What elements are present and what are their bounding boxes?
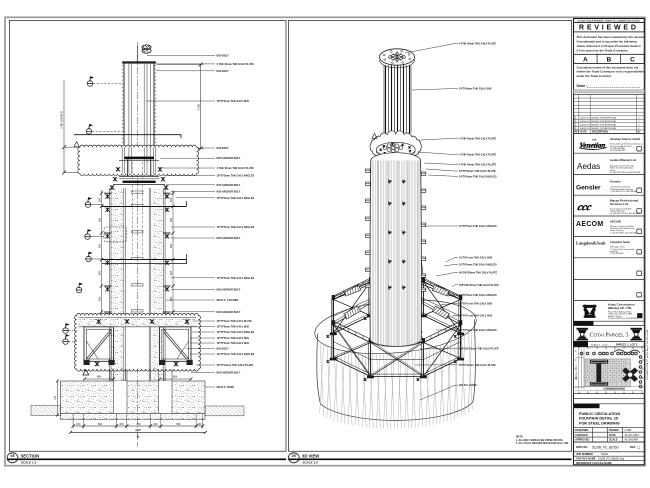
svg-text:C: C bbox=[630, 57, 635, 64]
svg-text:5110B_PC_B(0)50: 5110B_PC_B(0)50 bbox=[592, 445, 619, 449]
svg-text:864: 864 bbox=[173, 375, 178, 379]
svg-text:M16 BOLT: M16 BOLT bbox=[217, 348, 230, 351]
svg-text:4 THK 40mm THK GALV PLATE: 4 THK 40mm THK GALV PLATE bbox=[217, 167, 254, 170]
svg-text:REFERENCE CAD FILE NAME: REFERENCE CAD FILE NAME bbox=[576, 462, 612, 465]
svg-text:T: +852.2801.6722 F: +852.280: T: +852.2801.6722 F: +852.2801.6862 bbox=[610, 191, 637, 193]
svg-text:Tel: (853) 2882 8888: Tel: (853) 2882 8888 bbox=[610, 148, 625, 150]
svg-text:PUBLIC CIRCULATION: PUBLIC CIRCULATION bbox=[579, 412, 620, 416]
svg-text:10*70*50mm THK GALV PLATE: 10*70*50mm THK GALV PLATE bbox=[459, 170, 496, 173]
svg-text:40*70*10mm THK GALV PLATE: 40*70*10mm THK GALV PLATE bbox=[217, 364, 254, 367]
svg-text:Tel: (853) 2875 3225 Fax: (85: Tel: (853) 2875 3225 Fax: (853) 2875 322… bbox=[610, 213, 640, 215]
svg-text:FOUNTAIN DETAIL 25: FOUNTAIN DETAIL 25 bbox=[579, 417, 618, 421]
svg-text:SCALE 1:5: SCALE 1:5 bbox=[21, 461, 37, 465]
svg-text:Services Ltd.: Services Ltd. bbox=[610, 202, 629, 206]
svg-text:4 THK 40mm THK GALV PLATE: 4 THK 40mm THK GALV PLATE bbox=[459, 43, 496, 46]
svg-text:10*70*5mm THK GALV ANGLES: 10*70*5mm THK GALV ANGLES bbox=[217, 353, 255, 356]
svg-text:40*70*5mm THK GALV PLATE: 40*70*5mm THK GALV PLATE bbox=[217, 320, 253, 323]
svg-text:1. ALL BOLT SHOULD BE FIXING O: 1. ALL BOLT SHOULD BE FIXING ON SITE. bbox=[516, 439, 564, 442]
svg-text:M16 ANCHOR BOLT: M16 ANCHOR BOLT bbox=[217, 237, 241, 240]
svg-text:PROJECT TITLE: PROJECT TITLE bbox=[575, 324, 593, 326]
svg-text:200: 200 bbox=[76, 423, 81, 426]
svg-text:500: 500 bbox=[169, 270, 173, 275]
svg-text:APPROVED: APPROVED bbox=[575, 439, 589, 442]
svg-text:1786 (VARIES): 1786 (VARIES) bbox=[60, 111, 64, 129]
svg-text:500: 500 bbox=[97, 270, 101, 275]
svg-text:NOTE:: NOTE: bbox=[516, 437, 523, 439]
svg-text:200: 200 bbox=[153, 423, 158, 426]
svg-text:CAD FILE NAME: CAD FILE NAME bbox=[576, 458, 596, 461]
svg-text:500: 500 bbox=[97, 296, 101, 301]
svg-text:M16 ANCHOR BOLT: M16 ANCHOR BOLT bbox=[217, 191, 241, 194]
svg-text:4 THK 40mm THK GALV PLATE: 4 THK 40mm THK GALV PLATE bbox=[459, 154, 496, 157]
svg-text:DRAWN: DRAWN bbox=[609, 429, 619, 432]
svg-text:Date :: Date : bbox=[577, 83, 588, 88]
svg-text:864: 864 bbox=[97, 375, 102, 379]
svg-text:200: 200 bbox=[119, 423, 124, 426]
svg-text:Hsiao Offshore Building, 3rd f: Hsiao Offshore Building, 3rd floor bbox=[608, 311, 632, 313]
svg-text:REVIEWED: REVIEWED bbox=[579, 25, 639, 32]
svg-text:SCALE 1:5: SCALE 1:5 bbox=[303, 461, 319, 465]
svg-text:10*70*6mm THK GALV SHS: 10*70*6mm THK GALV SHS bbox=[217, 100, 250, 103]
svg-text:10*70*6mm THK GALV SHS: 10*70*6mm THK GALV SHS bbox=[217, 326, 250, 329]
svg-text:Macau: Macau bbox=[610, 170, 615, 172]
svg-text:100*100*10mm THK GALV PLATE: 100*100*10mm THK GALV PLATE bbox=[459, 347, 499, 350]
svg-text:C: C bbox=[638, 446, 641, 450]
svg-text:PARCEL 1, LOT 2: PARCEL 1, LOT 2 bbox=[616, 343, 638, 347]
svg-text:10*70*5 mm THK GALV SHS: 10*70*5 mm THK GALV SHS bbox=[459, 315, 492, 318]
svg-text:4 THK 40mm THK GALV PLATE: 4 THK 40mm THK GALV PLATE bbox=[459, 164, 496, 167]
svg-text:A: A bbox=[583, 57, 588, 64]
svg-text:200: 200 bbox=[197, 423, 202, 426]
svg-text:5.4 for action by the Trade Co: 5.4 for action by the Trade Contractor. bbox=[577, 48, 629, 52]
svg-text:B: B bbox=[607, 57, 612, 64]
svg-text:Tel: (853) 2833 1389 Fax: (85: Tel: (853) 2833 1389 Fax: (853) 2830 333… bbox=[610, 172, 640, 174]
svg-text:AECOM: AECOM bbox=[610, 219, 621, 223]
svg-text:FOR STEEL DRAWING: FOR STEEL DRAWING bbox=[579, 421, 620, 425]
svg-text:500: 500 bbox=[97, 243, 101, 248]
svg-text:Aedas: Aedas bbox=[577, 162, 600, 171]
svg-text:PARCEL 1, LOT 1: PARCEL 1, LOT 1 bbox=[575, 363, 578, 380]
svg-text:JOB NUMBER: JOB NUMBER bbox=[576, 453, 593, 456]
svg-text:10*70*5mm THK GALV ANGLES: 10*70*5mm THK GALV ANGLES bbox=[217, 174, 255, 177]
svg-text:Langdon Seah: Langdon Seah bbox=[610, 240, 630, 244]
svg-text:1-AUG-15: 1-AUG-15 bbox=[580, 120, 591, 123]
svg-text:500: 500 bbox=[169, 296, 173, 301]
svg-text:Gensler: Gensler bbox=[610, 179, 622, 183]
svg-text:1-AUG-15: 1-AUG-15 bbox=[580, 127, 591, 130]
svg-text:5110A: 5110A bbox=[601, 453, 608, 456]
svg-text:ESTRADA DO ISTMO: ESTRADA DO ISTMO bbox=[606, 388, 625, 391]
svg-text:710: 710 bbox=[53, 395, 57, 400]
svg-text:ISSUED FOR APPROVAL: ISSUED FOR APPROVAL bbox=[591, 120, 617, 123]
svg-text:SCALE: SCALE bbox=[609, 439, 618, 442]
svg-text:1-AUG-15: 1-AUG-15 bbox=[580, 123, 591, 126]
svg-text:CHECKED: CHECKED bbox=[575, 434, 588, 437]
svg-text:DATE: DATE bbox=[609, 434, 616, 437]
svg-text:Venetian Orient Limited: Venetian Orient Limited bbox=[610, 137, 640, 141]
svg-text:10*70*5 mm THK GALV SHS: 10*70*5 mm THK GALV SHS bbox=[459, 256, 492, 259]
svg-text:M16 BOLT: M16 BOLT bbox=[217, 55, 230, 58]
svg-text:J:\5110B\PC\5110B_PC_B(0)50.dw: J:\5110B\PC\5110B_PC_B(0)50.dwg 14-JUL-2… bbox=[647, 329, 649, 380]
svg-text:KEY PLAN: KEY PLAN bbox=[575, 344, 587, 347]
svg-text:Aedas (Macau) Ltd.: Aedas (Macau) Ltd. bbox=[610, 158, 637, 162]
svg-text:4 THK 40mm THK GALV PLATE: 4 THK 40mm THK GALV PLATE bbox=[217, 63, 254, 66]
svg-text:5110B_PC_B(0)50.dwg: 5110B_PC_B(0)50.dwg bbox=[598, 458, 625, 461]
svg-text:10*70*6mm THK GALV SHS: 10*70*6mm THK GALV SHS bbox=[459, 88, 492, 91]
svg-text:AECOM: AECOM bbox=[576, 221, 604, 228]
svg-text:Gensler: Gensler bbox=[576, 185, 601, 192]
svg-text:500: 500 bbox=[97, 217, 101, 222]
svg-text:Hong Kong: Hong Kong bbox=[610, 251, 618, 253]
svg-text:This document has been reviewe: This document has been reviewed by the r… bbox=[577, 35, 645, 39]
svg-text:LUND: LUND bbox=[625, 429, 632, 432]
svg-text:500: 500 bbox=[169, 217, 173, 222]
svg-text:T +852 2317 7600 F +852 2317: T +852 2317 7600 F +852 2317 7609 bbox=[610, 232, 636, 234]
svg-text:M16 ANCHOR BOLT: M16 ANCHOR BOLT bbox=[217, 157, 241, 160]
svg-text:40*100*50mm THK GALV PLATE: 40*100*50mm THK GALV PLATE bbox=[459, 272, 497, 275]
svg-text:ISSUED FOR APPROVAL: ISSUED FOR APPROVAL bbox=[591, 123, 617, 126]
svg-text:THE: THE bbox=[592, 140, 597, 142]
svg-text:M16 BOLT: M16 BOLT bbox=[217, 70, 230, 73]
svg-text:500: 500 bbox=[97, 197, 101, 202]
svg-text:1786: 1786 bbox=[196, 103, 200, 110]
svg-text:10*70*5mm THK GALV ANGLES: 10*70*5mm THK GALV ANGLES bbox=[217, 197, 255, 200]
svg-text:10*70*5mm THK GALV ANGLES: 10*70*5mm THK GALV ANGLES bbox=[217, 226, 255, 229]
svg-text:600 R.C. BASE: 600 R.C. BASE bbox=[217, 386, 235, 389]
svg-text:10*70*5mm THK GALV ANGLES: 10*70*5mm THK GALV ANGLES bbox=[459, 263, 497, 266]
svg-text:600 R.C. BASE: 600 R.C. BASE bbox=[459, 384, 477, 387]
svg-text:M16 ANCHOR BOLT: M16 ANCHOR BOLT bbox=[217, 184, 241, 187]
svg-text:10*70*5mm THK GALV ANGLES: 10*70*5mm THK GALV ANGLES bbox=[459, 294, 497, 297]
svg-text:AS SHOWN: AS SHOWN bbox=[625, 439, 639, 442]
svg-text:Langdon&Seah: Langdon&Seah bbox=[576, 241, 606, 246]
svg-text:2. ALL FILLET WELDED SHOULD BE: 2. ALL FILLET WELDED SHOULD BE 5mm THK. bbox=[516, 442, 569, 445]
svg-text:ISSUED FOR APPROVAL: ISSUED FOR APPROVAL bbox=[591, 127, 617, 130]
svg-text:Tel: (853) 28785033 Fax: (853: Tel: (853) 28785033 Fax: (853) 28785038 bbox=[608, 318, 638, 320]
svg-text:05: 05 bbox=[292, 454, 296, 458]
svg-text:864: 864 bbox=[176, 423, 181, 426]
svg-text:10*70*5mm THK GALV SHS: 10*70*5mm THK GALV SHS bbox=[217, 337, 250, 340]
svg-text:M16 ANCHOR BOLT: M16 ANCHOR BOLT bbox=[217, 289, 241, 292]
svg-text:M16 BOLT: M16 BOLT bbox=[217, 147, 230, 150]
svg-text:500: 500 bbox=[169, 197, 173, 202]
svg-text:10*70*5mm THK GALV ANGLES: 10*70*5mm THK GALV ANGLES bbox=[217, 331, 255, 334]
svg-text:(Macau) CO. LTD.: (Macau) CO. LTD. bbox=[608, 306, 632, 310]
svg-text:600 R.C. COLUMN: 600 R.C. COLUMN bbox=[217, 299, 239, 302]
svg-text:M16 ANCHOR BOLT: M16 ANCHOR BOLT bbox=[217, 372, 241, 375]
svg-text:864: 864 bbox=[98, 423, 103, 426]
svg-text:3D VIEW: 3D VIEW bbox=[302, 453, 319, 458]
svg-text:10*70*5mm THK GALV ANGLES: 10*70*5mm THK GALV ANGLES bbox=[459, 329, 497, 332]
svg-text:T: (852) 2830 3500: T: (852) 2830 3500 bbox=[610, 253, 623, 255]
svg-text:SECTION: SECTION bbox=[21, 453, 40, 458]
svg-text:SCALE 1 : 1,000: SCALE 1 : 1,000 bbox=[591, 344, 608, 347]
svg-text:DWG NO.: DWG NO. bbox=[576, 445, 588, 449]
svg-text:2598: 2598 bbox=[135, 428, 141, 432]
svg-text:14-JUL-2015: 14-JUL-2015 bbox=[625, 434, 640, 437]
svg-text:10*70*5mm THK GALV ANGLES: 10*70*5mm THK GALV ANGLES bbox=[459, 225, 497, 228]
svg-text:10*70*5mm THK GALV ANGLES: 10*70*5mm THK GALV ANGLES bbox=[459, 175, 497, 178]
svg-text:250: 250 bbox=[136, 423, 141, 426]
svg-text:10*70*5 mm THK GALV SHS: 10*70*5 mm THK GALV SHS bbox=[459, 302, 492, 305]
svg-text:10*70*5mm THK GALV SHS: 10*70*5mm THK GALV SHS bbox=[217, 342, 250, 345]
svg-text:DRAWING TITLE: DRAWING TITLE bbox=[575, 405, 594, 408]
svg-text:1-AUG-15: 1-AUG-15 bbox=[580, 116, 591, 119]
svg-text:M16 ANCHOR BOLT: M16 ANCHOR BOLT bbox=[217, 311, 241, 314]
svg-text:Fax: (853) 2882 8889: Fax: (853) 2882 8889 bbox=[610, 150, 625, 152]
svg-text:DESIGNED: DESIGNED bbox=[575, 429, 588, 432]
svg-text:ISSUED FOR APPROVAL: ISSUED FOR APPROVAL bbox=[591, 116, 617, 119]
svg-text:Consultant(s) and is accorded: Consultant(s) and is accorded the follow… bbox=[577, 39, 637, 43]
svg-text:under the Trade Contract.: under the Trade Contract. bbox=[577, 74, 612, 78]
svg-text:05: 05 bbox=[11, 454, 15, 458]
svg-text:40*70*10mm THK GALV PLATE: 40*70*10mm THK GALV PLATE bbox=[459, 364, 496, 367]
svg-text:status referred to in Project: status referred to in Project Procedure … bbox=[577, 44, 641, 48]
svg-text:100*100*10mm THK GALV PLATE: 100*100*10mm THK GALV PLATE bbox=[459, 284, 499, 287]
svg-text:4 THK 40mm THK GALV PLATE: 4 THK 40mm THK GALV PLATE bbox=[459, 137, 496, 140]
svg-text:10*70*5mm THK GALV ANGLES: 10*70*5mm THK GALV ANGLES bbox=[217, 277, 255, 280]
svg-text:REV: REV bbox=[630, 445, 636, 449]
svg-text:500: 500 bbox=[169, 243, 173, 248]
